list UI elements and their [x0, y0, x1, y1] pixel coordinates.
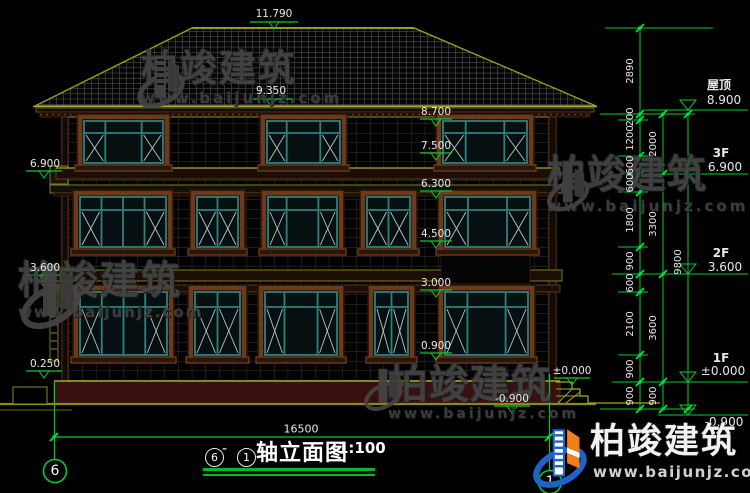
brand-swoosh-icon	[18, 252, 88, 338]
brand-swoosh-icon	[135, 50, 191, 112]
brand-swoosh-icon	[545, 156, 595, 218]
window	[259, 190, 346, 255]
brand-logo: 柏竣建筑 www.baijunjz.com	[500, 415, 750, 493]
window	[436, 285, 537, 363]
window	[434, 114, 536, 171]
window	[188, 190, 247, 255]
title-underline	[203, 468, 375, 471]
window	[256, 285, 346, 363]
window	[75, 114, 172, 171]
eave-fascia	[36, 108, 594, 112]
axis-bubble-left	[44, 460, 67, 483]
cad-elevation-viewport: 柏竣建筑 www.baijunjz.com 柏竣建筑 www.baijunjz.…	[0, 0, 750, 493]
window	[436, 190, 539, 255]
window	[358, 190, 419, 255]
watermark: 柏竣建筑 www.baijunjz.com	[545, 156, 748, 215]
watermark: 柏竣建筑 www.baijunjz.com	[358, 364, 579, 422]
window	[258, 114, 349, 171]
watermark: 柏竣建筑 www.baijunjz.com	[135, 50, 342, 107]
logo-url-text: www.baijunjz.com	[593, 463, 750, 481]
corner-trim-left	[62, 117, 68, 381]
brand-swoosh-icon	[358, 364, 412, 414]
window	[71, 190, 175, 255]
brand-logo-icon	[532, 421, 594, 493]
watermark: 柏竣建筑 www.baijunjz.com	[18, 252, 203, 321]
recess-panel	[441, 255, 530, 284]
title-text: 轴立面图	[256, 435, 348, 467]
windows	[71, 114, 539, 363]
watermark-brand: 柏竣建筑	[388, 364, 579, 406]
drawing-title: 6 - 1 轴立面图 1:100	[195, 440, 395, 480]
axis-bubble-1: 1	[237, 448, 256, 467]
title-scale: 1:100	[338, 439, 386, 457]
title-dash: -	[222, 441, 227, 457]
logo-brand-text: 柏竣建筑	[590, 425, 738, 460]
title-underline-2	[203, 474, 375, 476]
left-planter	[13, 387, 47, 404]
